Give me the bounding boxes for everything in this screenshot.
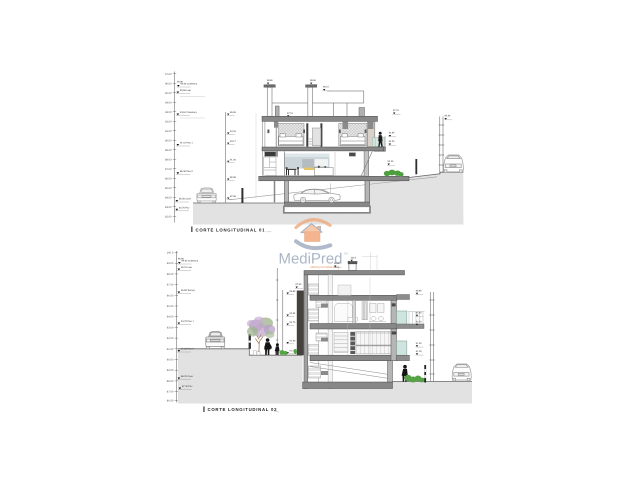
- svg-text:99.10 Laje: 99.10 Laje: [181, 266, 192, 269]
- svg-text:98.66: 98.66: [267, 79, 273, 82]
- svg-text:94.65: 94.65: [416, 311, 422, 314]
- svg-text:91.00: 91.00: [167, 348, 174, 351]
- svg-text:88.25 Cave: 88.25 Cave: [181, 375, 193, 378]
- svg-text:94.00: 94.00: [167, 316, 174, 319]
- svg-text:88.00: 88.00: [167, 380, 174, 383]
- svg-text:95.00: 95.00: [167, 305, 174, 308]
- svg-text:93.94 Cobertura: 93.94 Cobertura: [180, 111, 197, 114]
- svg-text:88.30 Piso 0: 88.30 Piso 0: [180, 170, 193, 173]
- svg-text:93.75: 93.75: [416, 320, 422, 323]
- svg-text:91.00 Piso 0: 91.00 Piso 0: [181, 348, 194, 351]
- svg-text:98.00: 98.00: [167, 273, 174, 276]
- svg-text:89.00: 89.00: [167, 369, 174, 372]
- svg-text:91.10 Piso 1: 91.10 Piso 1: [180, 142, 193, 145]
- svg-text:86.00: 86.00: [165, 177, 172, 180]
- svg-text:97.15: 97.15: [287, 112, 293, 115]
- svg-text:86.00: 86.00: [167, 400, 174, 403]
- svg-text:96.06: 96.06: [177, 81, 183, 84]
- svg-text:87.30 Pav: 87.30 Pav: [182, 385, 193, 388]
- svg-text:TM: TM: [344, 252, 349, 256]
- svg-text:92.30: 92.30: [388, 160, 394, 163]
- svg-text:CORTE LONGITUDINAL 02: CORTE LONGITUDINAL 02: [208, 407, 278, 412]
- svg-text:90.00: 90.00: [167, 359, 174, 362]
- svg-text:91.90: 91.90: [416, 342, 422, 345]
- svg-text:96.85: 96.85: [416, 289, 422, 292]
- svg-text:93.00: 93.00: [165, 111, 172, 114]
- svg-text:93.75 Piso 1: 93.75 Piso 1: [181, 320, 194, 323]
- svg-text:94.35: 94.35: [389, 140, 395, 143]
- svg-text:97.00: 97.00: [167, 284, 174, 287]
- svg-text:100.0: 100.0: [167, 252, 174, 255]
- svg-text:93.17: 93.17: [230, 140, 236, 143]
- svg-text:95.66 Laje: 95.66 Laje: [180, 89, 191, 92]
- svg-text:91.90: 91.90: [290, 340, 296, 343]
- svg-text:97.60: 97.60: [296, 283, 302, 286]
- svg-text:98.66: 98.66: [310, 79, 316, 82]
- svg-text:91.36: 91.36: [230, 158, 236, 161]
- svg-text:89.58: 89.58: [230, 176, 236, 179]
- svg-text:92.00: 92.00: [165, 120, 172, 123]
- svg-text:87.00: 87.00: [167, 391, 174, 394]
- svg-text:92.00: 92.00: [167, 337, 174, 340]
- svg-text:99.00: 99.00: [167, 262, 174, 265]
- svg-text:91.00: 91.00: [165, 130, 172, 133]
- svg-text:96.00: 96.00: [167, 294, 174, 297]
- svg-text:93.00: 93.00: [167, 326, 174, 329]
- svg-text:89.00: 89.00: [165, 149, 172, 152]
- svg-text:96.06: 96.06: [230, 111, 236, 114]
- svg-text:82.00: 82.00: [165, 215, 172, 218]
- svg-text:85.00: 85.00: [165, 187, 172, 190]
- svg-text:100.2: 100.2: [351, 256, 357, 259]
- svg-text:93.75: 93.75: [290, 321, 296, 324]
- svg-text:94.00: 94.00: [165, 101, 172, 104]
- svg-text:84.70 Pav: 84.70 Pav: [179, 206, 190, 209]
- svg-text:__: __: [266, 227, 272, 232]
- svg-text:96.06 Cobertura: 96.06 Cobertura: [181, 83, 198, 86]
- svg-text:85.50 Cave: 85.50 Cave: [179, 198, 191, 201]
- svg-text:91.00: 91.00: [416, 350, 422, 353]
- svg-text:95.90: 95.90: [445, 115, 451, 118]
- svg-text:84.00: 84.00: [165, 196, 172, 199]
- svg-text:88.00: 88.00: [165, 158, 172, 161]
- svg-text:99.60: 99.60: [334, 262, 340, 265]
- svg-text:98.15: 98.15: [323, 86, 329, 89]
- svg-text:94.65: 94.65: [290, 312, 296, 315]
- svg-text:99.60 Cobertura: 99.60 Cobertura: [182, 260, 199, 263]
- svg-text:87.00: 87.00: [165, 168, 172, 171]
- svg-text:96.85: 96.85: [290, 290, 296, 293]
- svg-text:90.00: 90.00: [165, 139, 172, 142]
- svg-text:95.00: 95.00: [165, 92, 172, 95]
- svg-text:83.00: 83.00: [165, 206, 172, 209]
- svg-text:87.68: 87.68: [230, 195, 236, 198]
- svg-text:94.95: 94.95: [389, 132, 395, 135]
- svg-text:99.60: 99.60: [178, 258, 184, 261]
- svg-text:96.00: 96.00: [165, 82, 172, 85]
- svg-text:96.85 Terraço: 96.85 Terraço: [181, 289, 196, 292]
- svg-text:CORTE LONGITUDINAL 01: CORTE LONGITUDINAL 01: [196, 227, 266, 232]
- svg-text:97.15: 97.15: [393, 109, 399, 112]
- svg-text:__: __: [273, 407, 279, 412]
- svg-text:97.00: 97.00: [165, 73, 172, 76]
- svg-text:94.18: 94.18: [230, 130, 236, 133]
